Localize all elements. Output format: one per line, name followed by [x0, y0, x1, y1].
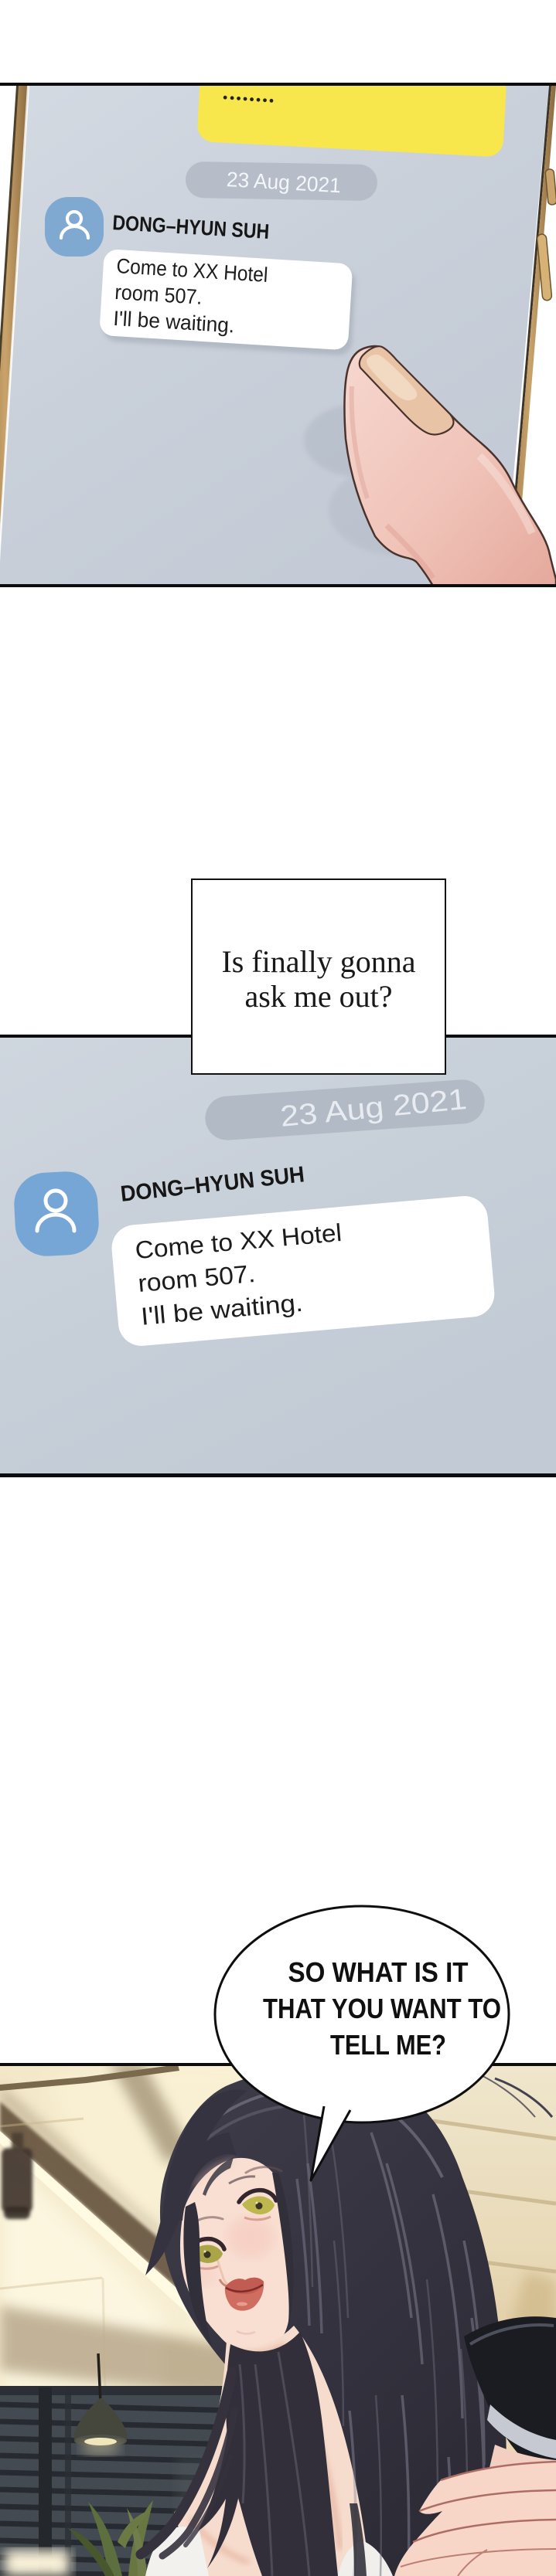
svg-text:THAT YOU WANT TO: THAT YOU WANT TO [263, 1993, 501, 2024]
svg-text:SO WHAT IS IT: SO WHAT IS IT [288, 1956, 469, 1988]
svg-text:TELL ME?: TELL ME? [330, 2029, 446, 2061]
